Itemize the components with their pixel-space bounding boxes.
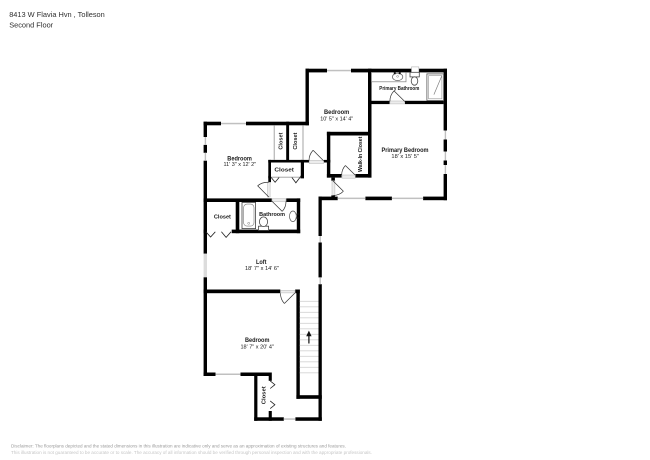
svg-text:Bedroom: Bedroom bbox=[324, 109, 349, 116]
svg-text:Closet: Closet bbox=[274, 168, 294, 174]
svg-text:This illustration is not guara: This illustration is not guaranteed to b… bbox=[11, 450, 372, 455]
svg-text:Walk-In Closet: Walk-In Closet bbox=[358, 137, 364, 172]
svg-text:18' x 15' 5": 18' x 15' 5" bbox=[391, 154, 419, 160]
svg-text:10' 5" x 14' 4": 10' 5" x 14' 4" bbox=[320, 116, 353, 122]
svg-text:Closet: Closet bbox=[262, 386, 268, 404]
svg-text:Loft: Loft bbox=[256, 259, 267, 266]
svg-text:Closet: Closet bbox=[214, 215, 231, 221]
svg-text:11' 3" x 12' 2": 11' 3" x 12' 2" bbox=[224, 162, 257, 168]
svg-text:Bedroom: Bedroom bbox=[245, 337, 270, 344]
svg-text:Bathroom: Bathroom bbox=[259, 212, 285, 218]
svg-text:8413 W Flavia Hvn , Tolleson: 8413 W Flavia Hvn , Tolleson bbox=[9, 10, 105, 19]
svg-text:Closet: Closet bbox=[293, 132, 299, 149]
svg-text:18' 7" x 20' 4": 18' 7" x 20' 4" bbox=[240, 344, 274, 350]
svg-text:18' 7" x 14' 6": 18' 7" x 14' 6" bbox=[245, 266, 279, 272]
svg-text:Closet: Closet bbox=[279, 132, 285, 149]
svg-text:Second Floor: Second Floor bbox=[9, 21, 53, 30]
svg-text:Disclaimer: The floorplans dep: Disclaimer: The floorplans depicted and … bbox=[11, 443, 346, 448]
svg-text:Primary Bathroom: Primary Bathroom bbox=[379, 86, 419, 92]
